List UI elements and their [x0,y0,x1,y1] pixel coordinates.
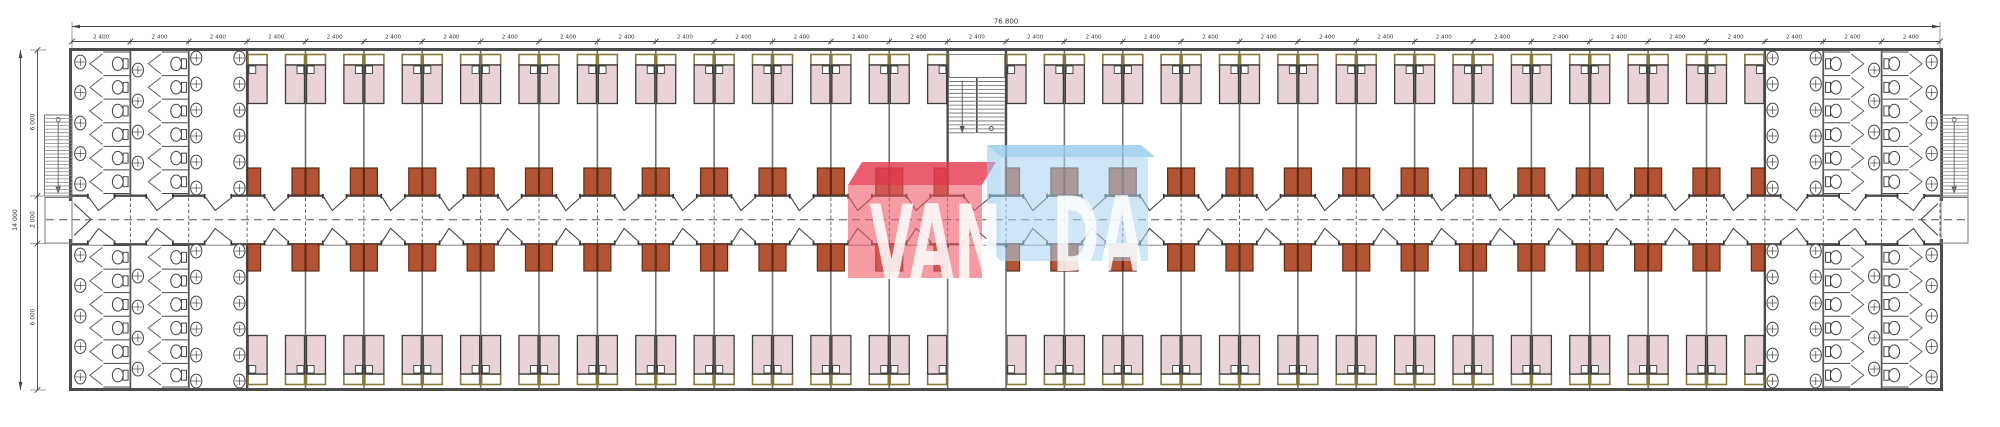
bed-headboard [657,55,676,66]
door-swing [1491,229,1513,242]
cabinet [1284,244,1297,271]
bed-headboard [1007,374,1026,385]
sink-icon [1767,296,1778,310]
sink-icon [132,63,143,77]
stall-door-swing [148,271,161,291]
door-swing [1840,229,1865,242]
bed [461,55,480,104]
cabinet [1401,168,1414,195]
bed [1336,55,1355,104]
door-swing [499,197,521,210]
sink-icon [1767,129,1778,143]
toilet-icon [112,274,128,287]
bed-headboard [774,55,793,66]
exterior-stair-left [45,115,73,243]
sink-icon [75,309,86,323]
bed-pillow [1523,66,1530,74]
toilet-icon [1826,321,1842,334]
bed-headboard [577,55,596,66]
sink-icon [191,244,202,258]
toilet-icon [112,175,128,188]
bed-pillow [1300,366,1307,374]
dim-label-bay: 2 400 [1903,35,1919,41]
bed [1007,336,1026,385]
bed-headboard [1182,55,1201,66]
bed-headboard [482,55,501,66]
bed-pillow [599,66,606,74]
toilet-icon [1826,57,1842,70]
sink-icon [1810,77,1821,91]
cabinet [292,244,305,271]
cabinet [642,244,655,271]
cabinet [1707,168,1720,195]
bathroom-left-top [75,51,245,210]
stall-door-swing [148,365,161,385]
toilet-icon [1884,251,1900,264]
watermark-text-right: DA [1052,174,1144,295]
stall-door-swing [1910,318,1923,338]
bed-headboard [1453,374,1472,385]
bed [774,55,793,104]
bed [286,336,305,385]
bathroom-left-bottom [75,229,245,388]
bed-pillow [1416,366,1423,374]
door-swing [1782,229,1807,242]
cabinet [759,244,772,271]
bed-pillow [1114,66,1121,74]
door-swing [324,229,346,242]
bed-headboard [1708,55,1727,66]
bed-pillow [881,366,888,374]
door-swing [499,229,521,242]
bed-pillow [414,66,421,74]
dim-label-bay: 2 400 [969,35,985,41]
toilet-icon [1826,175,1842,188]
bed [1649,336,1668,385]
dim-label-bay: 2 400 [1086,35,1102,41]
door-swing [265,229,287,242]
dim-label-bay: 2 400 [1261,35,1277,41]
cabinet [1649,168,1662,195]
bed [423,336,442,385]
door-swing [205,197,230,210]
exterior-stair-right [1941,115,1969,243]
cabinet [350,168,363,195]
bed-pillow [1231,366,1238,374]
bed-pillow [414,366,421,374]
bed [1220,55,1239,104]
stall-door-swing [148,125,161,145]
cabinet [701,168,714,195]
bed-pillow [1533,366,1540,374]
bed-pillow [472,66,479,74]
sink-icon [191,270,202,284]
cabinet [598,244,611,271]
door-swing [1374,229,1396,242]
bed-headboard [598,374,617,385]
door-swing [1433,197,1455,210]
bed [1357,336,1376,385]
bed [307,336,326,385]
bed-headboard [1474,55,1493,66]
cabinet [1635,168,1648,195]
toilet-icon [1884,104,1900,117]
bed-pillow [1300,66,1307,74]
bed [1591,336,1610,385]
bed-pillow [589,366,596,374]
door-swing [732,229,754,242]
bed [1532,336,1551,385]
bed-headboard [1241,374,1260,385]
bed [890,336,909,385]
bed-pillow [658,66,665,74]
bed-pillow [1008,366,1015,374]
sink-icon [191,77,202,91]
bed [598,55,617,104]
cabinet [656,244,669,271]
dim-label-bay: 2 400 [1786,35,1802,41]
bed-pillow [1592,366,1599,374]
bed [832,336,851,385]
bed-headboard [636,55,655,66]
bed [832,55,851,104]
sink-icon [1767,77,1778,91]
stall-door-swing [90,78,103,98]
bed-headboard [461,55,480,66]
bed [1357,55,1376,104]
bed-headboard [461,374,480,385]
sink-icon [75,248,86,262]
stall-door-swing [1851,148,1864,168]
sink-icon [1810,296,1821,310]
bed-pillow [424,66,431,74]
bed [1570,336,1589,385]
cabinet [1693,168,1706,195]
bed-headboard [519,374,538,385]
door-swing [1199,229,1221,242]
bed [928,55,947,104]
bed-headboard [1278,374,1297,385]
stall-door-swing [148,54,161,74]
dim-label-bay: 2 400 [1436,35,1452,41]
bed-pillow [1358,366,1365,374]
sink-icon [191,129,202,143]
bed-headboard [1745,55,1764,66]
bed-pillow [424,366,431,374]
stall-door-swing [1851,342,1864,362]
sink-icon [1810,181,1821,195]
stall-door-swing [1910,148,1923,168]
cabinet [1518,168,1531,195]
bed-headboard [344,374,363,385]
door-swing [1433,229,1455,242]
bed [344,55,363,104]
sink-icon [1869,94,1880,108]
bed [890,55,909,104]
bed-headboard [1395,55,1414,66]
cabinet [831,244,844,271]
sink-icon [1869,125,1880,139]
stall-door-swing [1910,78,1923,98]
bed-headboard [286,374,305,385]
bed-headboard [307,55,326,66]
bed-pillow [716,66,723,74]
vanda-watermark: VANDA [848,145,1155,304]
bed-pillow [1640,366,1647,374]
bed-headboard [1182,374,1201,385]
stall-door-swing [1910,342,1923,362]
stall-door-swing [90,295,103,315]
bed [344,336,363,385]
bed-pillow [833,366,840,374]
sink-icon [191,51,202,65]
bed [1161,55,1180,104]
bed-pillow [1592,66,1599,74]
cabinet [1415,244,1428,271]
door-swing [616,229,638,242]
cabinet [773,244,786,271]
bed-pillow [307,366,314,374]
bed-pillow [1241,366,1248,374]
toilet-icon [1884,175,1900,188]
bed [307,55,326,104]
bed [248,336,267,385]
stall-door-swing [148,342,161,362]
stall-door-swing [148,295,161,315]
bed-headboard [1336,374,1355,385]
bed-pillow [1416,66,1423,74]
bed-headboard [540,374,559,385]
bed-pillow [1465,66,1472,74]
cabinet [715,168,728,195]
dim-label-bay: 2 400 [677,35,693,41]
door-swing [557,197,579,210]
bed [1182,55,1201,104]
bed-headboard [577,374,596,385]
bed-headboard [890,374,909,385]
cabinet [656,168,669,195]
bed-pillow [1348,366,1355,374]
bed-headboard [869,55,888,66]
bed-pillow [531,366,538,374]
bed-headboard [1687,374,1706,385]
dimension-top: 76 8002 4002 4002 4002 4002 4002 4002 40… [69,18,1943,49]
door-swing [791,197,813,210]
sink-icon [1869,63,1880,77]
bed-pillow [1241,66,1248,74]
bed-pillow [482,66,489,74]
bed-pillow [1698,66,1705,74]
cabinet [1576,168,1589,195]
bed [715,55,734,104]
sink-icon [75,147,86,161]
bed-pillow [1475,366,1482,374]
sink-icon [1810,348,1821,362]
sink-icon [1926,248,1937,262]
bed-pillow [1756,66,1763,74]
bed [1745,336,1764,385]
bed-pillow [355,66,362,74]
bed [1745,55,1764,104]
bed [1474,336,1493,385]
bed [540,55,559,104]
bed [402,336,421,385]
cabinet [526,168,539,195]
sink-icon [1926,340,1937,354]
door-swing [1840,197,1865,210]
bed-headboard [1124,374,1143,385]
sink-icon [234,348,245,362]
bed [577,336,596,385]
bed [1649,55,1668,104]
bed-pillow [482,366,489,374]
stall-door-swing [1851,365,1864,385]
toilet-icon [1884,298,1900,311]
bed-headboard [1336,55,1355,66]
sink-icon [1810,129,1821,143]
sink-icon [1810,103,1821,117]
bed-headboard [1474,374,1493,385]
cabinet [248,168,261,195]
sink-icon [132,362,143,376]
sink-icon [1767,51,1778,65]
stall-door-swing [148,172,161,192]
sink-icon [132,331,143,345]
bed-headboard [482,374,501,385]
bed-pillow [658,366,665,374]
bed-pillow [1066,366,1073,374]
door-swing [1782,197,1807,210]
bed-pillow [939,366,946,374]
bed-headboard [928,374,947,385]
toilet-icon [1826,345,1842,358]
bed-headboard [1511,374,1530,385]
stall-door-swing [1851,78,1864,98]
cabinet [817,244,830,271]
sink-icon [1926,279,1937,293]
bed-headboard [1220,374,1239,385]
bed-pillow [1183,66,1190,74]
sink-icon [1767,270,1778,284]
cabinet [1474,168,1487,195]
bed-headboard [890,55,909,66]
cabinet [1401,244,1414,271]
toilet-icon [171,81,187,94]
dim-label-bay: 2 400 [1669,35,1685,41]
bed-pillow [1173,366,1180,374]
bed-headboard [1416,374,1435,385]
cabinet [1226,168,1239,195]
bed-headboard [1416,55,1435,66]
door-swing [1666,229,1688,242]
central-stair [949,55,1005,134]
dim-label-bay: 2 400 [1728,35,1744,41]
dim-label-bay: 2 400 [1494,35,1510,41]
cabinet [1590,244,1603,271]
sink-icon [132,269,143,283]
toilet-icon [1884,345,1900,358]
bed [1065,55,1084,104]
sink-icon [234,374,245,388]
bed [1044,55,1063,104]
door-swing [732,197,754,210]
dim-label-band: 6 000 [31,308,37,325]
stall-door-swing [1910,54,1923,74]
stall-door-swing [1851,318,1864,338]
bed [1278,55,1297,104]
dim-label-total-width: 76 800 [994,18,1019,26]
bed [519,55,538,104]
bed [365,336,384,385]
stall-door-swing [148,148,161,168]
sink-icon [132,300,143,314]
bed-pillow [1533,66,1540,74]
toilet-icon [171,57,187,70]
sink-icon [75,55,86,69]
cabinet [409,244,422,271]
bed-pillow [1650,366,1657,374]
toilet-icon [112,57,128,70]
dim-label-bay: 2 400 [619,35,635,41]
cabinet [1182,244,1195,271]
bed [869,55,888,104]
bed [694,55,713,104]
bed [1687,55,1706,104]
sink-icon [1926,309,1937,323]
bed-headboard [1044,55,1063,66]
bed-headboard [1591,55,1610,66]
bed-pillow [355,366,362,374]
bed-pillow [774,66,781,74]
bed-headboard [1532,374,1551,385]
door-swing [1898,197,1923,210]
bed-pillow [764,66,771,74]
bed-pillow [1650,66,1657,74]
bed [1687,336,1706,385]
bed-pillow [1475,66,1482,74]
sink-icon [1767,322,1778,336]
toilet-icon [171,151,187,164]
sink-icon [75,86,86,100]
bed [482,336,501,385]
bed [1453,336,1472,385]
cabinet [598,168,611,195]
cabinet [481,244,494,271]
sink-icon [1767,181,1778,195]
cabinet [1284,168,1297,195]
bed-headboard [1628,55,1647,66]
bed-pillow [833,66,840,74]
bed [811,55,830,104]
bed-pillow [891,366,898,374]
dim-label-bay: 2 400 [502,35,518,41]
bed [1299,336,1318,385]
bed [928,336,947,385]
cabinet [1532,168,1545,195]
bed-headboard [811,374,830,385]
stall-door-swing [90,172,103,192]
stall-door-swing [1910,172,1923,192]
cabinet [526,244,539,271]
toilet-icon [112,151,128,164]
toilet-icon [171,251,187,264]
dim-label-bay: 2 400 [910,35,926,41]
cabinet [1707,244,1720,271]
door-swing [1258,197,1280,210]
sink-icon [191,181,202,195]
cabinet [423,244,436,271]
bed-headboard [1532,55,1551,66]
